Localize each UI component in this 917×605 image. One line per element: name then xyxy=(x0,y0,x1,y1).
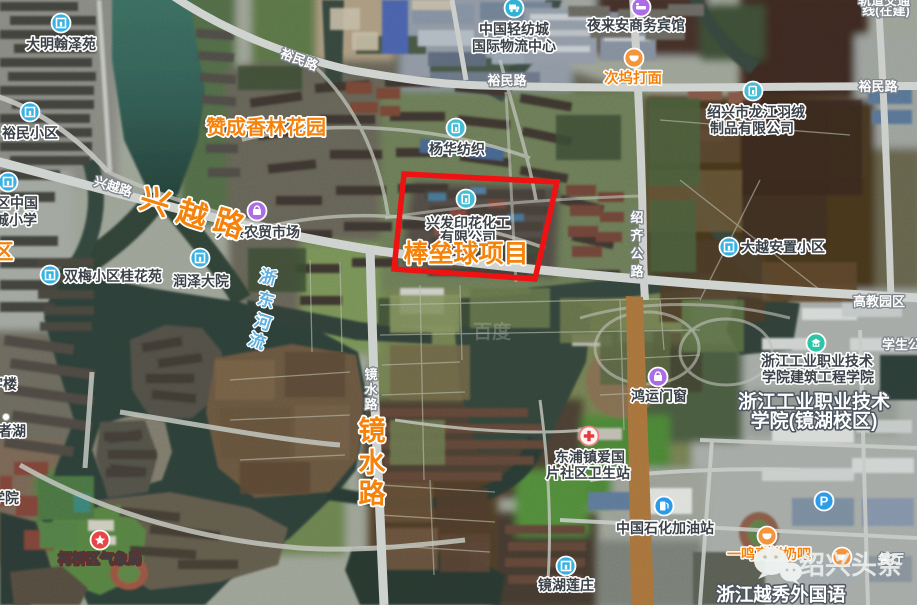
svg-text:路: 路 xyxy=(364,397,378,412)
svg-text:高教园区: 高教园区 xyxy=(853,294,905,309)
svg-text:制品有限公司: 制品有限公司 xyxy=(710,120,794,136)
svg-text:片社区卫生站: 片社区卫生站 xyxy=(546,465,630,481)
svg-text:杨华纺织: 杨华纺织 xyxy=(429,141,485,157)
svg-text:学生公寓: 学生公寓 xyxy=(882,337,917,352)
svg-text:学院建筑工程学院: 学院建筑工程学院 xyxy=(762,369,874,385)
svg-text:赞成香林花园: 赞成香林花园 xyxy=(205,115,326,139)
svg-text:城小学: 城小学 xyxy=(0,212,37,228)
svg-text:镜湖莲庄: 镜湖莲庄 xyxy=(538,577,594,593)
svg-text:裕民路: 裕民路 xyxy=(857,79,898,94)
svg-text:润泽大院: 润泽大院 xyxy=(173,273,229,289)
svg-text:浙江工业职业技术: 浙江工业职业技术 xyxy=(738,390,890,413)
svg-text:P: P xyxy=(820,494,829,509)
svg-text:国际物流中心: 国际物流中心 xyxy=(472,38,556,54)
svg-text:路: 路 xyxy=(359,478,387,509)
svg-text:齐: 齐 xyxy=(630,228,644,243)
svg-text:学院: 学院 xyxy=(0,490,19,506)
svg-text:鸿运门窗: 鸿运门窗 xyxy=(631,388,687,404)
svg-text:公: 公 xyxy=(630,246,643,261)
svg-text:路: 路 xyxy=(630,264,644,279)
svg-text:区: 区 xyxy=(0,241,14,264)
svg-text:大明翰泽苑: 大明翰泽苑 xyxy=(26,36,96,52)
svg-text:中国轻纺城: 中国轻纺城 xyxy=(479,21,549,37)
svg-text:水: 水 xyxy=(359,448,387,478)
svg-text:绍: 绍 xyxy=(630,210,643,225)
svg-text:夜来安商务宾馆: 夜来安商务宾馆 xyxy=(586,17,685,33)
svg-text:浙江越秀外国语: 浙江越秀外国语 xyxy=(716,584,846,605)
svg-text:次坞打面: 次坞打面 xyxy=(604,69,662,87)
svg-text:水: 水 xyxy=(364,382,378,397)
svg-text:者湖: 者湖 xyxy=(0,423,26,439)
svg-text:大越安置小区: 大越安置小区 xyxy=(741,239,825,255)
svg-text:棒垒球项目: 棒垒球项目 xyxy=(403,239,528,268)
svg-text:裕民小区: 裕民小区 xyxy=(1,125,58,141)
svg-text:裕民路: 裕民路 xyxy=(486,73,527,88)
svg-text:区中国: 区中国 xyxy=(0,195,38,211)
svg-text:柯桥区气象局: 柯桥区气象局 xyxy=(58,551,142,567)
svg-text:绍兴头条: 绍兴头条 xyxy=(799,550,904,580)
svg-text:浙江工业职业技术: 浙江工业职业技术 xyxy=(761,353,873,369)
svg-text:中国石化加油站: 中国石化加油站 xyxy=(616,520,714,536)
svg-text:双梅小区桂花苑: 双梅小区桂花苑 xyxy=(64,268,162,284)
svg-text:绍兴市龙江羽绒: 绍兴市龙江羽绒 xyxy=(707,104,805,120)
svg-text:学院(镜湖校区): 学院(镜湖校区) xyxy=(751,409,878,432)
svg-text:东浦镇爱国: 东浦镇爱国 xyxy=(555,449,625,465)
svg-text:轨道交通: 轨道交通 xyxy=(858,0,910,8)
svg-text:镜: 镜 xyxy=(364,367,377,382)
svg-text:镜: 镜 xyxy=(359,416,386,446)
svg-text:宇楼: 宇楼 xyxy=(0,376,17,392)
